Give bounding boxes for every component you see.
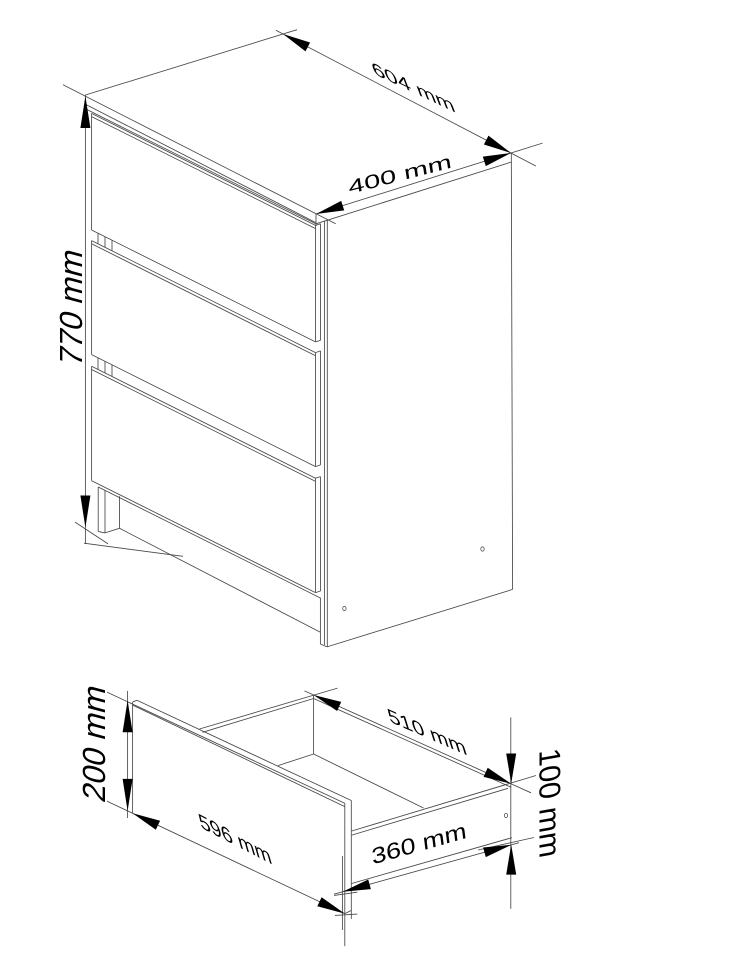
svg-text:604 mm: 604 mm [368, 57, 458, 117]
svg-text:200 mm: 200 mm [76, 680, 111, 805]
svg-text:360 mm: 360 mm [370, 818, 468, 870]
svg-text:510 mm: 510 mm [384, 704, 469, 760]
svg-text:596 mm: 596 mm [195, 808, 274, 869]
svg-text:770 mm: 770 mm [53, 244, 88, 369]
svg-text:400 mm: 400 mm [347, 151, 453, 198]
svg-text:100 mm: 100 mm [533, 746, 566, 860]
